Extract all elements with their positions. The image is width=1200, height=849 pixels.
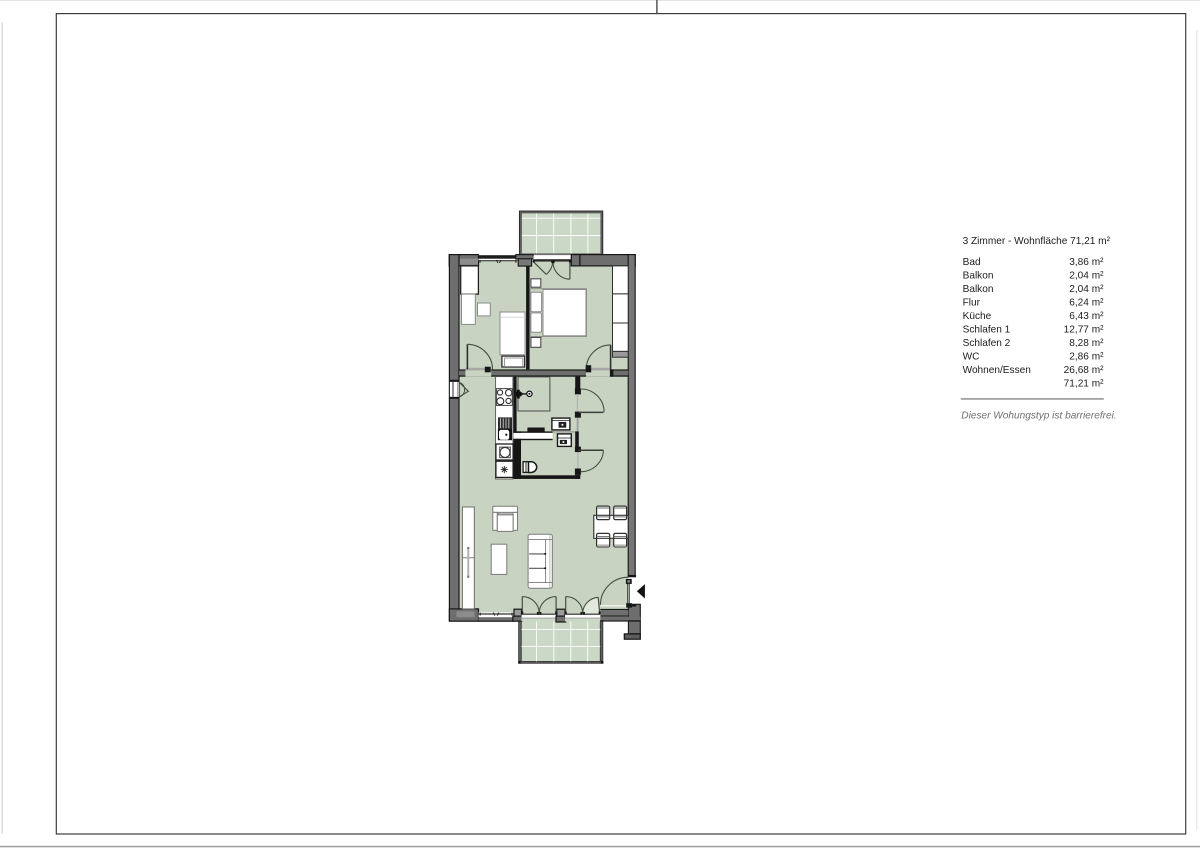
svg-text:Schlafen 1: Schlafen 1 [963, 325, 1011, 336]
svg-text:WC: WC [963, 352, 980, 363]
svg-text:2,04 m²: 2,04 m² [1069, 270, 1104, 281]
svg-text:Küche: Küche [963, 311, 992, 322]
svg-text:2,04 m²: 2,04 m² [1069, 284, 1104, 295]
svg-text:26,68 m²: 26,68 m² [1064, 365, 1104, 376]
svg-text:Dieser Wohungstyp ist barriere: Dieser Wohungstyp ist barrierefrei. [961, 411, 1116, 422]
svg-text:3,86 m²: 3,86 m² [1069, 257, 1104, 268]
svg-text:Schlafen 2: Schlafen 2 [963, 338, 1011, 349]
svg-text:Bad: Bad [963, 257, 981, 268]
svg-text:12,77 m²: 12,77 m² [1064, 325, 1104, 336]
svg-text:Balkon: Balkon [963, 284, 994, 295]
svg-text:2,86 m²: 2,86 m² [1069, 352, 1104, 363]
svg-text:Wohnen/Essen: Wohnen/Essen [963, 365, 1031, 376]
svg-text:Balkon: Balkon [963, 270, 994, 281]
svg-text:6,24 m²: 6,24 m² [1069, 298, 1104, 309]
svg-text:6,43 m²: 6,43 m² [1069, 311, 1104, 322]
svg-text:71,21 m²: 71,21 m² [1064, 379, 1104, 390]
svg-text:3 Zimmer - Wohnfläche 71,21 m²: 3 Zimmer - Wohnfläche 71,21 m² [963, 236, 1111, 247]
svg-text:Flur: Flur [963, 298, 981, 309]
svg-text:8,28 m²: 8,28 m² [1069, 338, 1104, 349]
